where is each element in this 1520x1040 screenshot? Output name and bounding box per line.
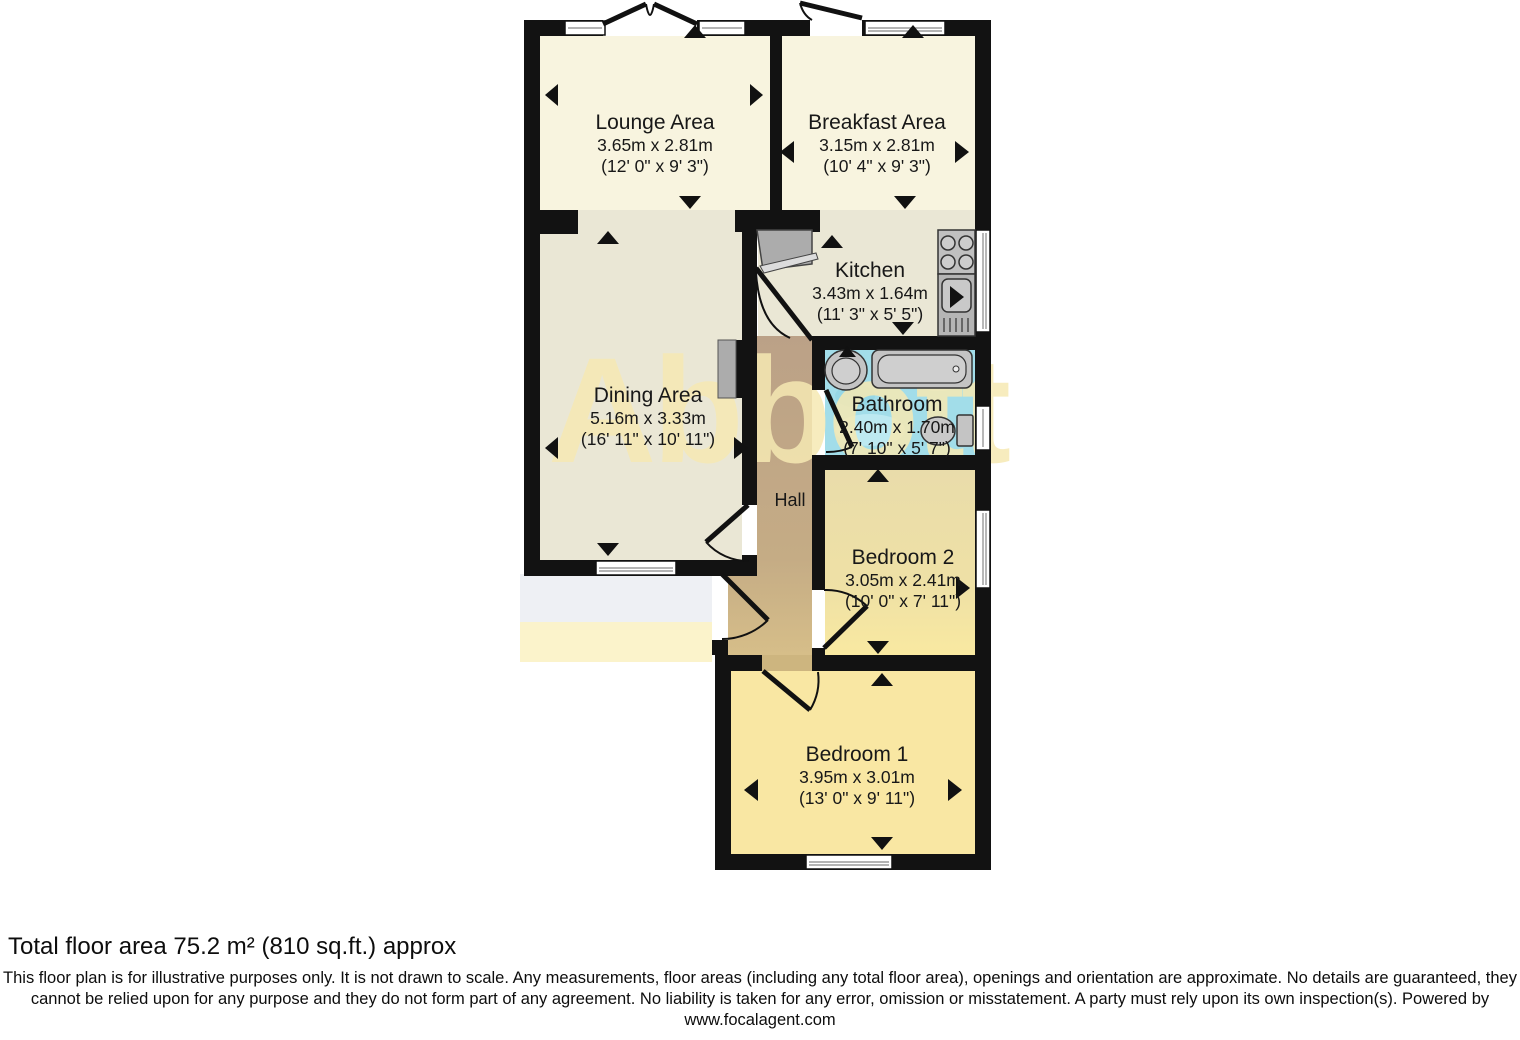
room-dim-imperial: (11' 3" x 5' 5") <box>812 304 928 325</box>
room-dim-imperial: (10' 4" x 9' 3") <box>808 156 946 177</box>
kitchen-sink-icon <box>938 274 975 336</box>
room-label-bedroom1: Bedroom 1 3.95m x 3.01m (13' 0" x 9' 11"… <box>799 742 915 809</box>
room-dim-metric: 3.95m x 3.01m <box>799 767 915 788</box>
room-dim-imperial: (16' 11" x 10' 11") <box>581 429 715 450</box>
room-name: Kitchen <box>812 258 928 283</box>
kitchen-hob-icon <box>938 230 975 274</box>
room-dim-metric: 3.65m x 2.81m <box>595 135 714 156</box>
floor-plan: Abbott <box>0 0 1520 920</box>
room-label-kitchen: Kitchen 3.43m x 1.64m (11' 3" x 5' 5") <box>812 258 928 325</box>
room-name: Breakfast Area <box>808 110 946 135</box>
room-label-lounge: Lounge Area 3.65m x 2.81m (12' 0" x 9' 3… <box>595 110 714 177</box>
room-name: Bedroom 1 <box>799 742 915 767</box>
bathtub-icon <box>872 350 972 388</box>
room-label-dining: Dining Area 5.16m x 3.33m (16' 11" x 10'… <box>581 383 715 450</box>
room-dim-imperial: (7' 10" x 5' 7") <box>839 438 955 459</box>
disclaimer-text: This floor plan is for illustrative purp… <box>0 968 1520 1031</box>
room-label-bathroom: Bathroom 2.40m x 1.70m (7' 10" x 5' 7") <box>839 392 955 459</box>
room-label-breakfast: Breakfast Area 3.15m x 2.81m (10' 4" x 9… <box>808 110 946 177</box>
floorplan-drawing: Abbott <box>0 0 1520 920</box>
room-name: Lounge Area <box>595 110 714 135</box>
room-dim-metric: 3.15m x 2.81m <box>808 135 946 156</box>
room-dim-metric: 3.05m x 2.41m <box>845 570 961 591</box>
room-dim-metric: 3.43m x 1.64m <box>812 283 928 304</box>
room-dim-metric: 5.16m x 3.33m <box>581 408 715 429</box>
chimney-breast <box>718 340 736 398</box>
room-dim-imperial: (10' 0" x 7' 11") <box>845 591 961 612</box>
total-floor-area: Total floor area 75.2 m² (810 sq.ft.) ap… <box>8 933 456 961</box>
room-name: Bedroom 2 <box>845 545 961 570</box>
room-label-hall: Hall <box>774 490 805 511</box>
room-label-bedroom2: Bedroom 2 3.05m x 2.41m (10' 0" x 7' 11"… <box>845 545 961 612</box>
room-name: Dining Area <box>581 383 715 408</box>
floorplan-page: Abbott <box>0 0 1520 1040</box>
room-dim-imperial: (12' 0" x 9' 3") <box>595 156 714 177</box>
room-name: Bathroom <box>839 392 955 417</box>
room-dim-imperial: (13' 0" x 9' 11") <box>799 788 915 809</box>
room-dim-metric: 2.40m x 1.70m <box>839 417 955 438</box>
